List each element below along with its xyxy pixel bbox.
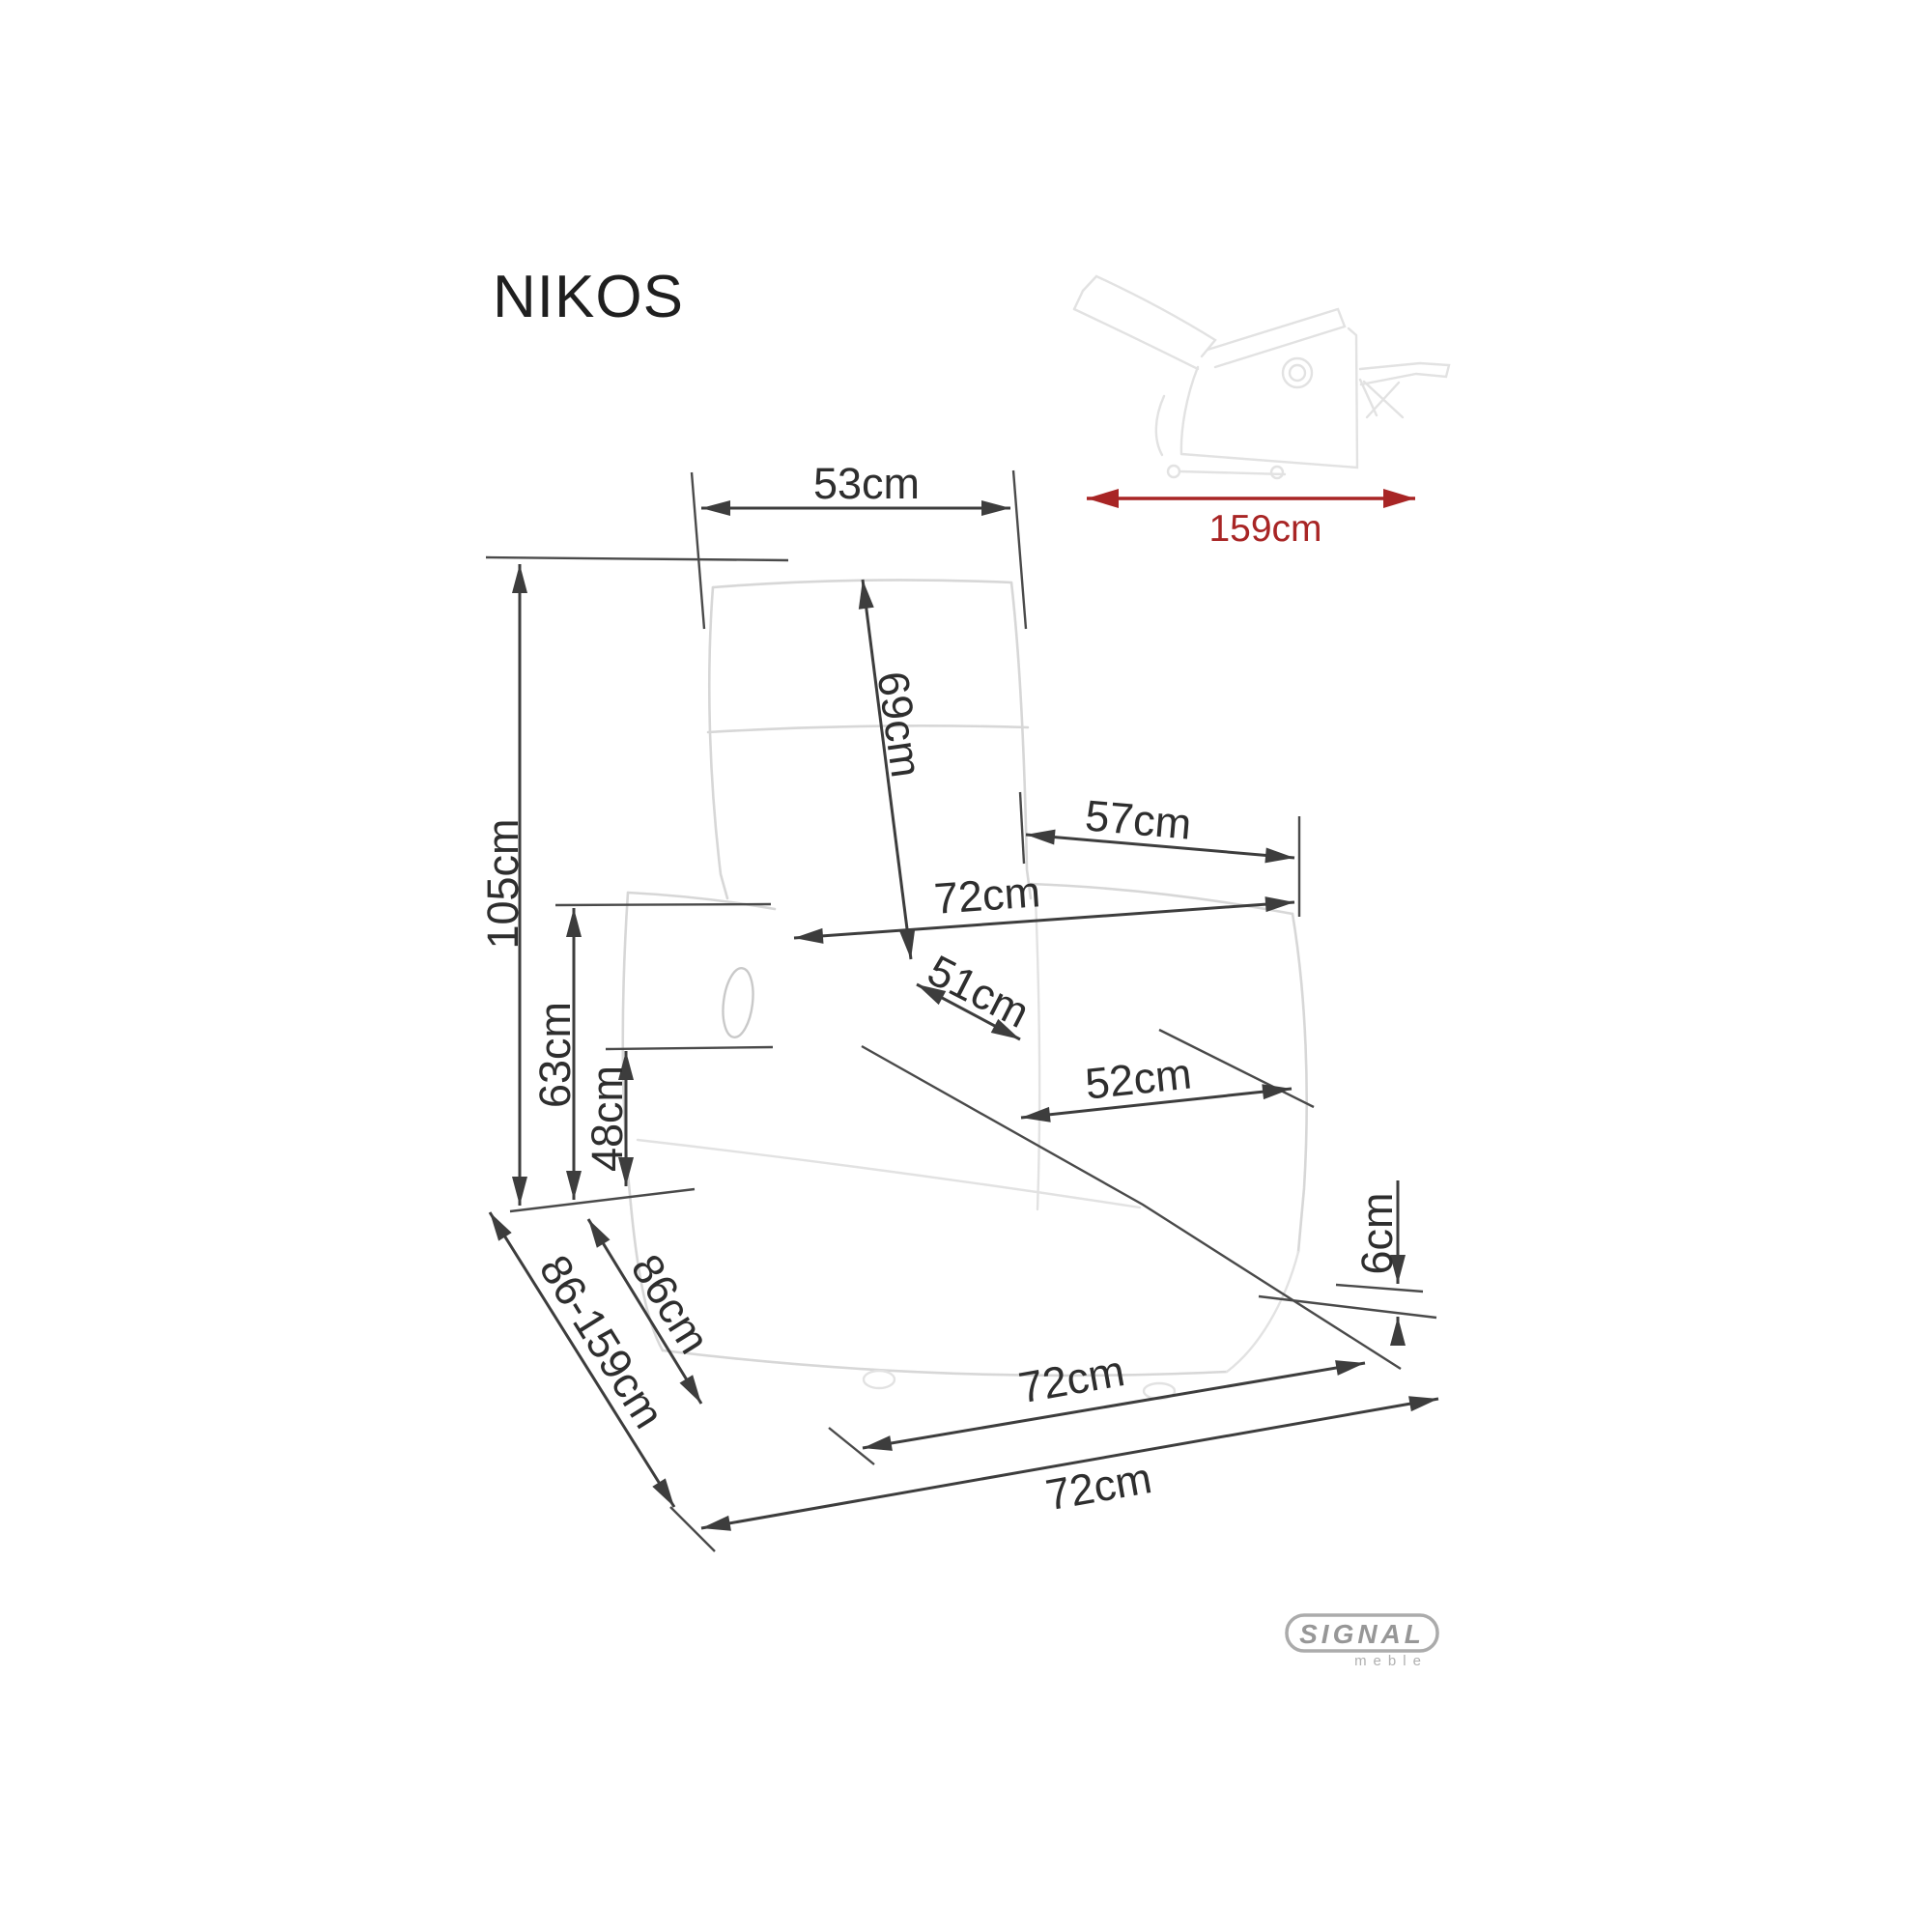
diagram-canvas: 159cm 53cm 69cm 105cm 63cm 48cm (0, 0, 1932, 1932)
inset-front-roll (1156, 396, 1164, 455)
logo-subtext: meble (1354, 1653, 1428, 1669)
inset-backrest-end (1074, 291, 1083, 309)
dim-line-72-mid (794, 902, 1294, 938)
dim-label-69: 69cm (867, 668, 931, 781)
dim-inner-back-width: 57cm (1026, 790, 1294, 858)
dim-base-depth: 72cm (863, 1346, 1365, 1448)
dim-label-63: 63cm (530, 1002, 580, 1108)
base-right-corner (1227, 1252, 1298, 1372)
recliner-side-inset-sketch (1074, 276, 1449, 478)
right-armrest-outer (1293, 914, 1307, 1252)
inset-base-line (1179, 471, 1285, 474)
dim-top-width: 53cm (701, 459, 1010, 508)
dim-label-159: 159cm (1208, 508, 1321, 550)
dimension-diagram-page: 159cm 53cm 69cm 105cm 63cm 48cm (0, 0, 1932, 1932)
dim-total-height: 105cm (478, 564, 527, 1206)
dim-ground-clearance: 6cm (1352, 1180, 1402, 1343)
base-bottom-edge (663, 1350, 1227, 1376)
backrest-left-edge (709, 587, 727, 898)
left-panel-top (628, 893, 775, 909)
dim-label-86: 86cm (621, 1246, 720, 1362)
dim-seat-depth: 51cm (917, 945, 1037, 1039)
dim-label-72-overall: 72cm (1042, 1453, 1155, 1520)
inset-caster-left (1168, 466, 1179, 477)
ext-seat-top (606, 1047, 773, 1049)
dim-label-72-mid: 72cm (932, 867, 1041, 923)
seat-front-edge (638, 1140, 1140, 1207)
right-armrest-inner (1036, 898, 1039, 1209)
inset-seat-surface (1207, 309, 1345, 367)
ext-top-height (486, 557, 788, 560)
ext-6-bottom (1259, 1296, 1436, 1318)
ext-57-left (1020, 792, 1024, 864)
inset-power-button-outer (1283, 358, 1312, 387)
dim-label-6: 6cm (1352, 1192, 1402, 1274)
ext-6-top (1336, 1285, 1423, 1292)
ext-53-right (1013, 470, 1026, 629)
ext-floor-left (510, 1189, 695, 1211)
ext-53-left (692, 472, 704, 629)
ext-72b-left (670, 1507, 715, 1551)
dim-label-105: 105cm (478, 818, 527, 949)
inset-footrest (1360, 363, 1449, 384)
product-title: NIKOS (493, 264, 684, 330)
dim-label-72-base: 72cm (1015, 1346, 1128, 1412)
inset-caster-right (1271, 467, 1283, 478)
dim-label-53: 53cm (813, 459, 920, 508)
front-foot-left (864, 1371, 895, 1388)
logo-wordmark: SIGNAL (1299, 1619, 1425, 1649)
brand-logo: SIGNAL meble (1287, 1615, 1437, 1669)
dim-seat-width: 52cm (1021, 1048, 1292, 1118)
dim-label-48: 48cm (582, 1065, 632, 1172)
dim-armrest-height: 63cm (530, 908, 580, 1200)
dim-overall-depth: 72cm (701, 1399, 1438, 1528)
recline-lever (720, 966, 757, 1038)
dim-seat-height: 48cm (582, 1051, 632, 1186)
dim-backrest-height: 69cm (863, 580, 931, 959)
right-armrest-top (1031, 884, 1293, 914)
inset-power-button-inner (1290, 365, 1305, 381)
dim-label-51: 51cm (920, 945, 1037, 1037)
backrest-seam (708, 725, 1028, 732)
ext-armrest-top (555, 904, 771, 905)
dim-label-57: 57cm (1083, 790, 1193, 848)
backrest-right-edge (1011, 582, 1031, 898)
inset-footrest-linkage (1360, 380, 1403, 417)
dim-expanded-length: 159cm (1087, 498, 1415, 550)
inset-body-left (1181, 367, 1198, 454)
